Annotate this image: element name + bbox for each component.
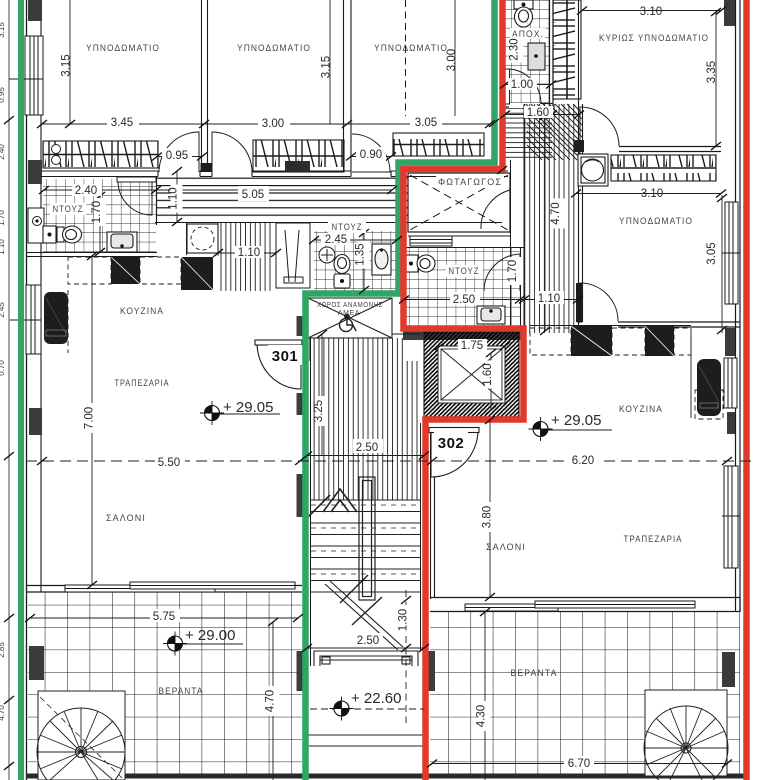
svg-text:ΣΑΛΟΝΙ: ΣΑΛΟΝΙ [486,542,526,553]
svg-text:2.45: 2.45 [325,234,347,246]
svg-text:+ 29.00: + 29.00 [185,627,235,644]
svg-text:ΝΤΟΥΖ: ΝΤΟΥΖ [332,222,363,233]
svg-text:ΥΠΝΟΔΩΜΑΤΙΟ: ΥΠΝΟΔΩΜΑΤΙΟ [619,216,693,227]
svg-text:1.70: 1.70 [507,260,519,282]
svg-text:1.70: 1.70 [91,201,103,223]
svg-text:ΒΕΡΑΝΤΑ: ΒΕΡΑΝΤΑ [511,668,558,679]
svg-text:ΥΠΝΟΔΩΜΑΤΙΟ: ΥΠΝΟΔΩΜΑΤΙΟ [374,43,448,54]
svg-text:3.15: 3.15 [0,22,6,38]
svg-text:+ 29.05: + 29.05 [551,412,601,429]
svg-text:1.70: 1.70 [0,210,6,226]
svg-text:4.70: 4.70 [0,705,6,721]
svg-text:0.95: 0.95 [0,87,6,103]
svg-text:5.75: 5.75 [153,611,175,623]
svg-text:ΥΠΝΟΔΩΜΑΤΙΟ: ΥΠΝΟΔΩΜΑΤΙΟ [237,43,311,54]
svg-text:1.10: 1.10 [0,239,6,255]
svg-text:2.40: 2.40 [0,144,6,160]
svg-text:0.90: 0.90 [360,149,382,161]
svg-text:3.35: 3.35 [706,61,718,83]
svg-text:1.35: 1.35 [355,243,367,265]
svg-text:3.10: 3.10 [640,6,662,18]
svg-text:ΤΡΑΠΕΖΑΡΙΑ: ΤΡΑΠΕΖΑΡΙΑ [624,534,683,545]
svg-text:3.80: 3.80 [482,506,494,528]
svg-text:ΤΡΑΠΕΖΑΡΙΑ: ΤΡΑΠΕΖΑΡΙΑ [115,378,170,389]
svg-text:1.10: 1.10 [538,293,560,305]
svg-text:3.15: 3.15 [321,56,333,78]
svg-text:1.30: 1.30 [398,609,410,631]
svg-text:ΧΩΡΟΣ ΑΝΑΜΟΝΗΣ: ΧΩΡΟΣ ΑΝΑΜΟΝΗΣ [317,302,383,309]
svg-text:6.70: 6.70 [568,758,590,770]
svg-text:6.20: 6.20 [572,455,594,467]
svg-text:3.00: 3.00 [446,49,458,71]
svg-text:0.70: 0.70 [0,360,6,376]
svg-text:1.75: 1.75 [461,340,483,352]
svg-text:4.70: 4.70 [550,202,562,224]
svg-text:3.45: 3.45 [111,117,133,129]
svg-text:302: 302 [438,435,465,452]
svg-text:3.05: 3.05 [706,242,718,264]
svg-text:ΝΤΟΥΖ: ΝΤΟΥΖ [449,266,480,277]
svg-text:ΣΑΛΟΝΙ: ΣΑΛΟΝΙ [106,513,146,524]
svg-text:7.00: 7.00 [84,407,96,429]
svg-text:3.25: 3.25 [313,400,325,422]
svg-text:1.10: 1.10 [238,247,260,259]
svg-text:4.30: 4.30 [476,705,488,727]
svg-text:0.95: 0.95 [166,150,188,162]
svg-text:ΚΟΥΖΙΝΑ: ΚΟΥΖΙΝΑ [120,306,164,317]
svg-text:5.50: 5.50 [158,457,180,469]
svg-text:+ 29.05: + 29.05 [223,399,273,416]
svg-text:2.50: 2.50 [453,294,475,306]
svg-text:2.50: 2.50 [356,442,378,454]
svg-text:5.05: 5.05 [242,189,264,201]
svg-text:2.45: 2.45 [0,302,6,318]
svg-text:3.00: 3.00 [262,118,284,130]
svg-text:3.15: 3.15 [61,54,73,76]
svg-text:2.30: 2.30 [509,38,521,60]
svg-text:1.10: 1.10 [168,187,180,209]
svg-text:301: 301 [272,348,299,365]
svg-text:ΚΥΡΙΩΣ ΥΠΝΟΔΩΜΑΤΙΟ: ΚΥΡΙΩΣ ΥΠΝΟΔΩΜΑΤΙΟ [599,33,709,44]
svg-text:1.60: 1.60 [482,363,494,385]
svg-text:2.40: 2.40 [75,185,97,197]
svg-text:ΑΜΕΑ: ΑΜΕΑ [338,310,360,317]
svg-text:ΚΟΥΖΙΝΑ: ΚΟΥΖΙΝΑ [619,404,663,415]
svg-text:+ 22.60: + 22.60 [351,690,401,707]
svg-text:4.70: 4.70 [265,690,277,712]
svg-text:ΝΤΟΥΖ: ΝΤΟΥΖ [53,204,84,215]
svg-text:ΒΕΡΑΝΤΑ: ΒΕΡΑΝΤΑ [159,686,204,697]
svg-text:2.50: 2.50 [357,635,379,647]
svg-text:1.00: 1.00 [511,79,533,91]
svg-text:2.85: 2.85 [0,642,6,658]
svg-text:3.10: 3.10 [641,188,663,200]
svg-text:1.60: 1.60 [527,107,549,119]
svg-text:3.05: 3.05 [415,117,437,129]
svg-text:ΦΩΤΑΓΩΓΟΣ: ΦΩΤΑΓΩΓΟΣ [438,177,502,188]
svg-text:ΥΠΝΟΔΩΜΑΤΙΟ: ΥΠΝΟΔΩΜΑΤΙΟ [86,43,160,54]
